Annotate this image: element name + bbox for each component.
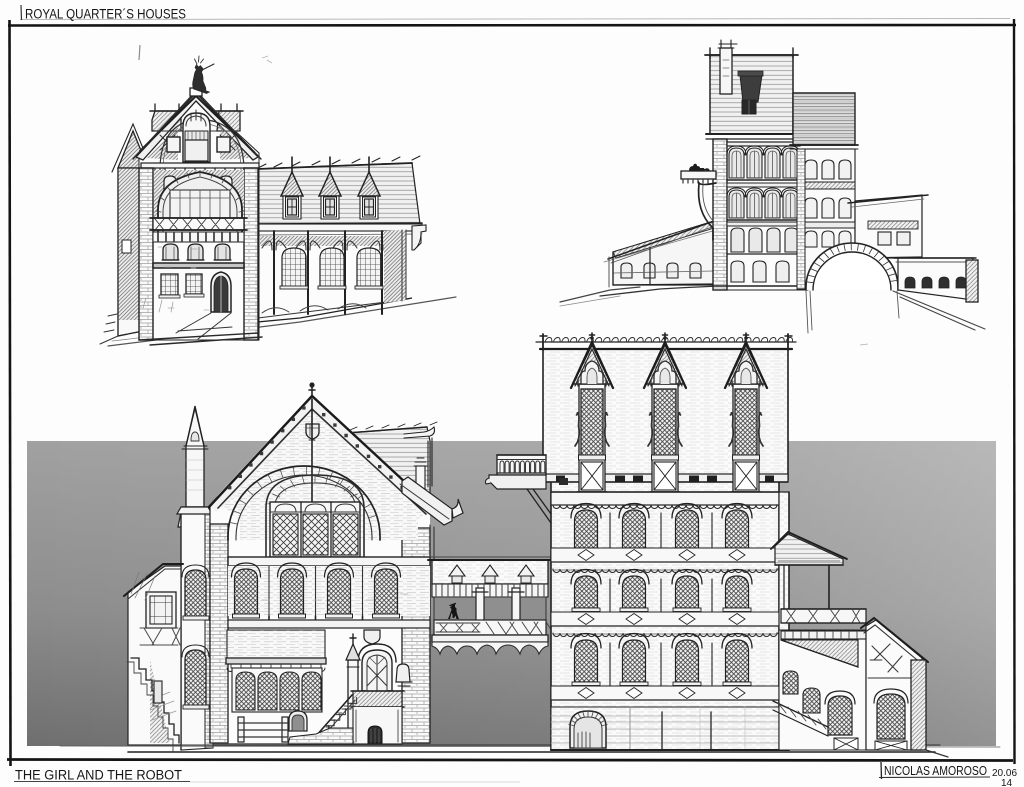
svg-text:THE GIRL AND THE ROBOT: THE GIRL AND THE ROBOT <box>15 768 182 783</box>
svg-text:14: 14 <box>1001 778 1013 787</box>
svg-text:NICOLAS AMOROSO: NICOLAS AMOROSO <box>884 764 987 778</box>
svg-text:ROYAL QUARTER´S HOUSES: ROYAL QUARTER´S HOUSES <box>25 7 186 22</box>
